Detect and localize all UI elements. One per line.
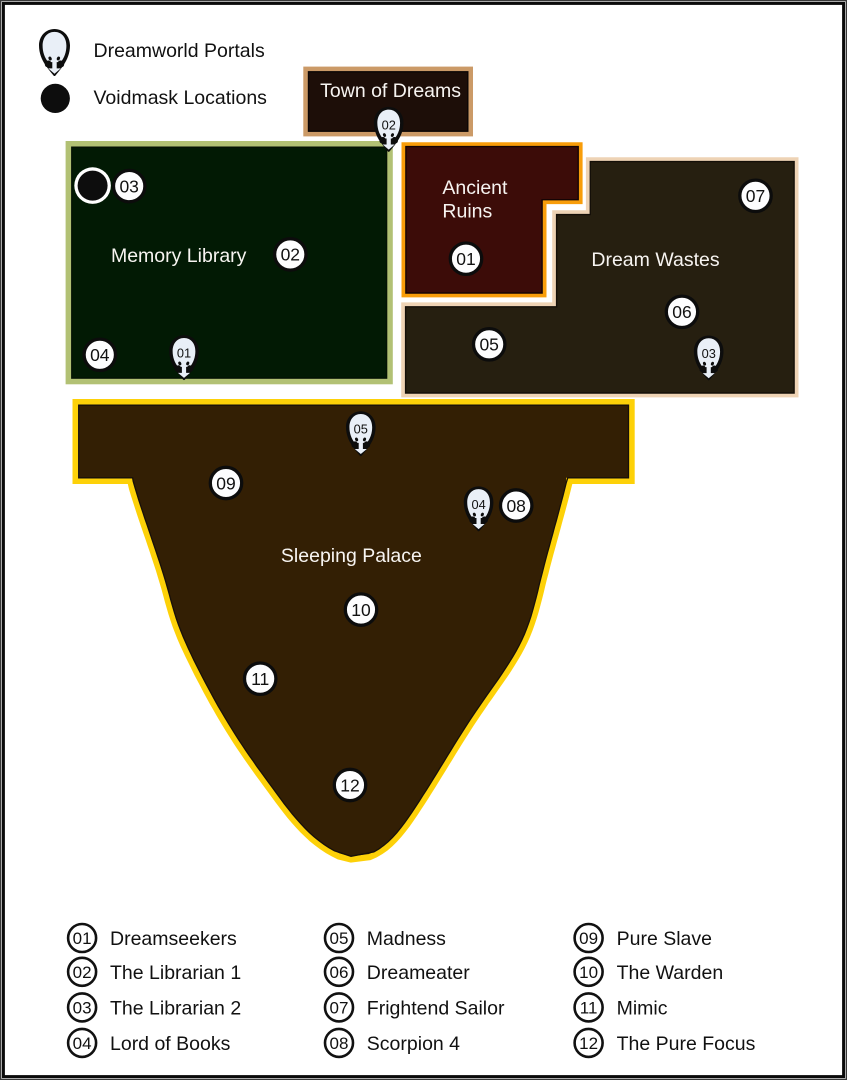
svg-text:Frightend Sailor: Frightend Sailor — [367, 997, 505, 1019]
svg-text:11: 11 — [580, 998, 598, 1017]
svg-text:08: 08 — [330, 1034, 349, 1053]
svg-text:Sleeping Palace: Sleeping Palace — [281, 545, 422, 567]
svg-text:Memory Library: Memory Library — [111, 245, 247, 267]
svg-text:Dreamworld Portals: Dreamworld Portals — [94, 40, 265, 62]
svg-text:The Librarian 1: The Librarian 1 — [110, 962, 241, 984]
svg-text:Dreameater: Dreameater — [367, 962, 470, 984]
svg-text:01: 01 — [73, 929, 92, 948]
svg-text:09: 09 — [579, 929, 598, 948]
svg-text:Pure Slave: Pure Slave — [617, 928, 712, 950]
svg-text:05: 05 — [330, 929, 349, 948]
svg-text:02: 02 — [73, 963, 92, 982]
svg-text:01: 01 — [177, 346, 191, 361]
svg-text:12: 12 — [340, 775, 359, 795]
svg-text:08: 08 — [506, 496, 525, 516]
svg-text:Mimic: Mimic — [617, 997, 668, 1019]
svg-text:05: 05 — [354, 422, 368, 437]
svg-text:12: 12 — [579, 1034, 598, 1053]
svg-text:04: 04 — [73, 1034, 92, 1053]
svg-text:04: 04 — [471, 497, 485, 512]
svg-text:06: 06 — [672, 302, 691, 322]
svg-text:10: 10 — [579, 963, 598, 982]
svg-text:03: 03 — [73, 998, 92, 1017]
svg-text:Ruins: Ruins — [442, 201, 492, 223]
svg-text:10: 10 — [351, 600, 371, 620]
svg-text:Town of Dreams: Town of Dreams — [320, 80, 461, 102]
svg-text:11: 11 — [251, 669, 269, 689]
svg-text:The Warden: The Warden — [617, 962, 724, 984]
svg-text:07: 07 — [746, 186, 765, 206]
svg-text:06: 06 — [330, 963, 349, 982]
svg-text:Scorpion 4: Scorpion 4 — [367, 1033, 460, 1055]
svg-text:03: 03 — [119, 176, 138, 196]
svg-text:04: 04 — [90, 345, 110, 365]
svg-text:Dream Wastes: Dream Wastes — [591, 249, 719, 271]
svg-text:Ancient: Ancient — [442, 177, 508, 199]
svg-text:09: 09 — [216, 473, 235, 493]
svg-text:The Pure Focus: The Pure Focus — [617, 1033, 756, 1055]
svg-text:02: 02 — [382, 117, 396, 132]
svg-text:Dreamseekers: Dreamseekers — [110, 928, 237, 950]
svg-text:Madness: Madness — [367, 928, 446, 950]
svg-text:02: 02 — [281, 245, 300, 265]
svg-text:01: 01 — [456, 249, 475, 269]
svg-text:Lord of Books: Lord of Books — [110, 1033, 231, 1055]
svg-text:The Librarian 2: The Librarian 2 — [110, 997, 241, 1019]
svg-text:03: 03 — [702, 346, 716, 361]
svg-text:07: 07 — [330, 998, 349, 1017]
svg-text:Voidmask Locations: Voidmask Locations — [94, 87, 268, 109]
svg-text:05: 05 — [479, 335, 498, 355]
